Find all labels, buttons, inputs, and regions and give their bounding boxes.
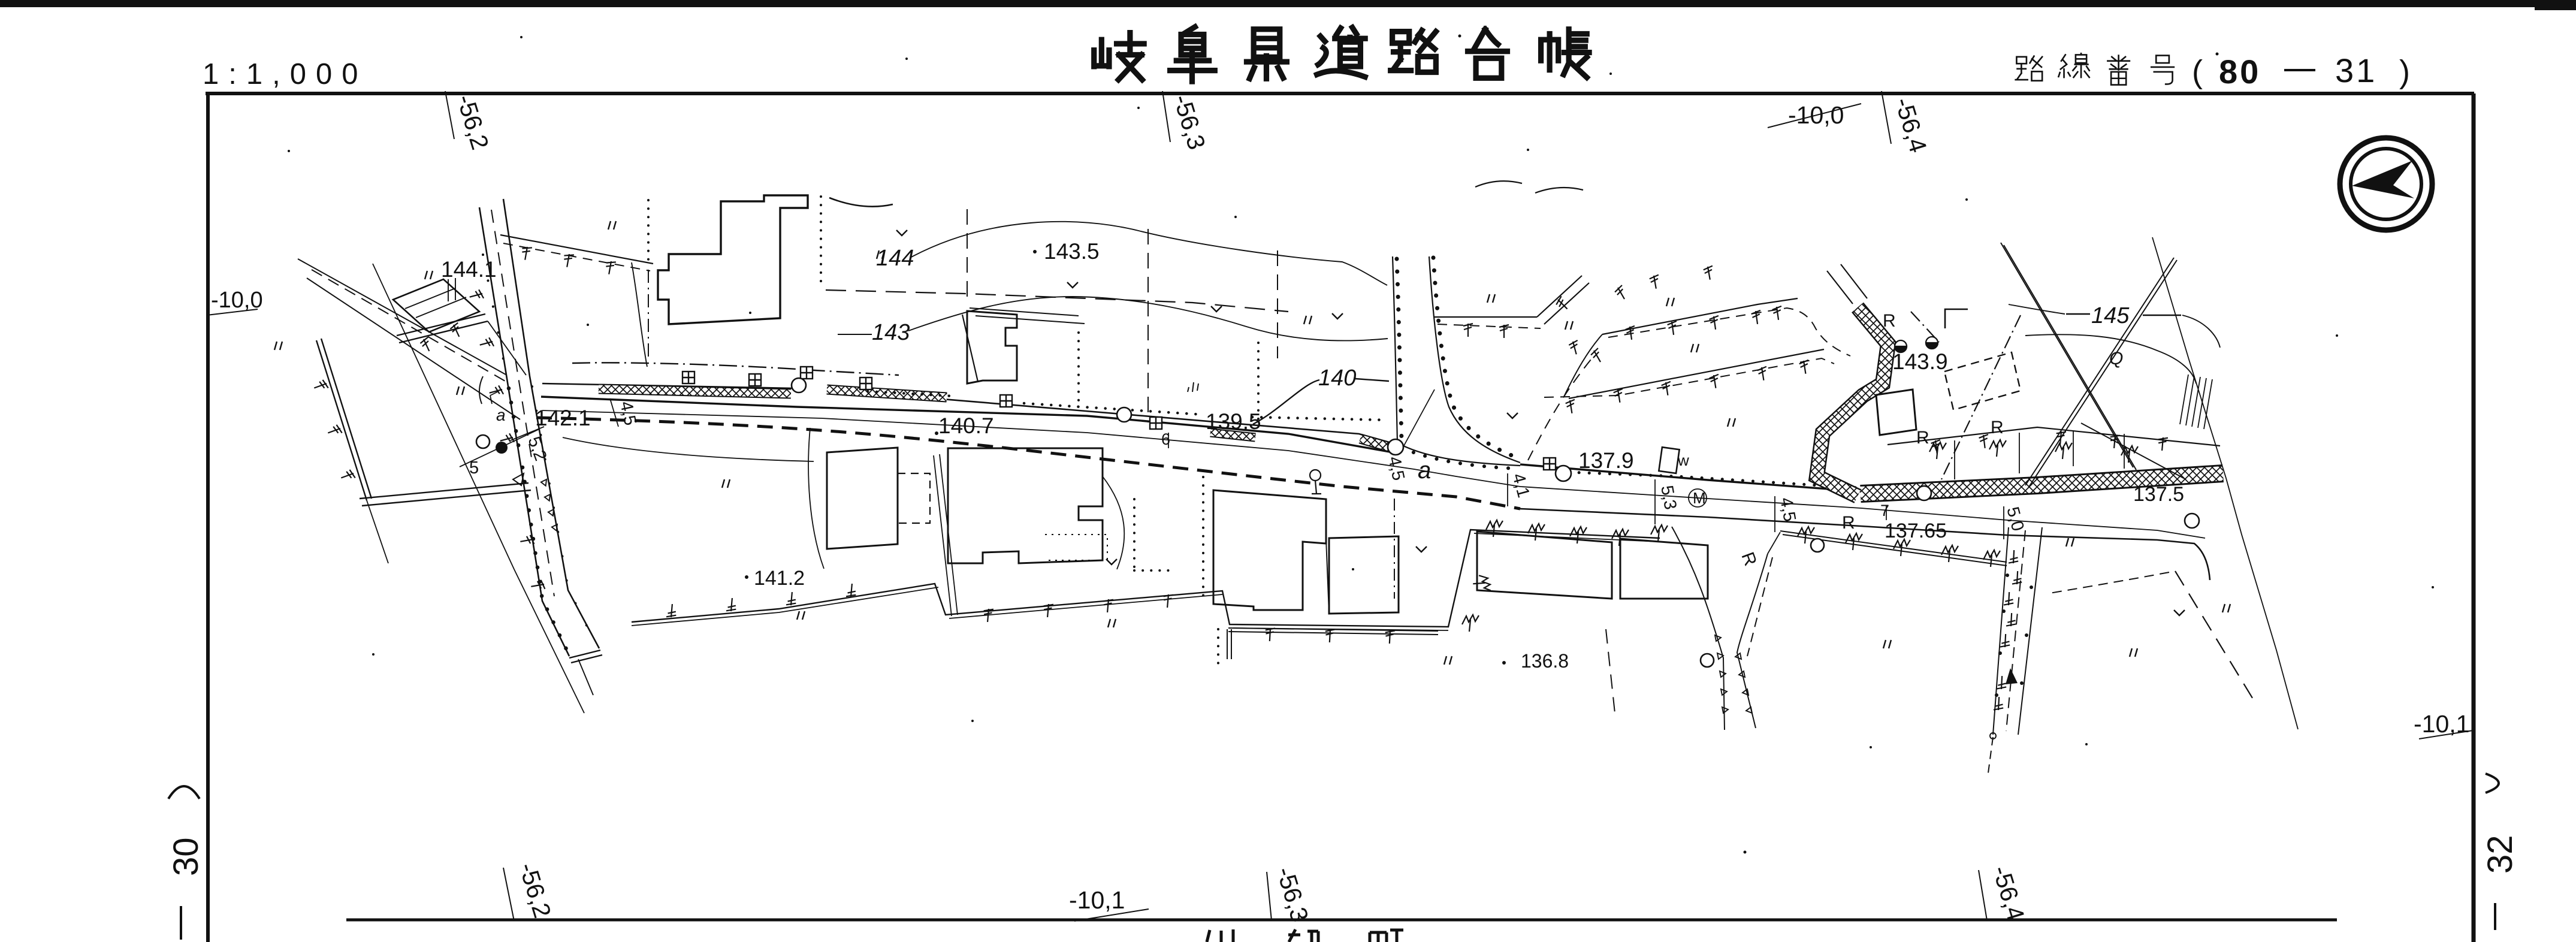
svg-text:a: a — [1418, 457, 1431, 484]
svg-text:R: R — [1916, 428, 1929, 448]
svg-text:143.9: 143.9 — [1892, 349, 1948, 374]
svg-text:): ) — [2399, 54, 2410, 90]
svg-text:R: R — [1883, 311, 1896, 331]
svg-text:7: 7 — [1880, 502, 1889, 520]
svg-text:a: a — [496, 406, 506, 424]
svg-text:136.8: 136.8 — [1521, 650, 1569, 672]
svg-text:139.5: 139.5 — [1206, 409, 1261, 434]
svg-text:137.9: 137.9 — [1578, 448, 1634, 473]
svg-text:Q: Q — [2109, 349, 2123, 369]
svg-text:137.65: 137.65 — [1885, 520, 1947, 542]
svg-text:140: 140 — [1318, 366, 1356, 391]
svg-text:1:1,000: 1:1,000 — [203, 58, 368, 90]
svg-text:137.5: 137.5 — [2133, 483, 2184, 506]
svg-text:143: 143 — [872, 320, 910, 345]
svg-text:30: 30 — [167, 837, 206, 876]
svg-text:145: 145 — [2091, 303, 2130, 328]
svg-text:R: R — [1842, 513, 1855, 533]
svg-text:80: 80 — [2219, 53, 2261, 90]
svg-text:32: 32 — [2481, 835, 2520, 874]
svg-text:144.1: 144.1 — [441, 257, 497, 282]
svg-text:(: ( — [2192, 54, 2203, 90]
svg-text:-10,0: -10,0 — [1788, 101, 1844, 129]
svg-text:141.2: 141.2 — [754, 567, 805, 590]
svg-text:-10,1: -10,1 — [1069, 886, 1125, 914]
svg-text:142.1: 142.1 — [535, 406, 591, 430]
svg-text:5: 5 — [469, 458, 479, 478]
svg-text:R: R — [1991, 418, 2004, 437]
svg-text:140.7: 140.7 — [938, 413, 994, 438]
svg-text:-10,0: -10,0 — [211, 288, 263, 313]
svg-text:143.5: 143.5 — [1044, 239, 1100, 264]
svg-text:-10,1: -10,1 — [2414, 710, 2469, 738]
svg-text:31: 31 — [2335, 52, 2377, 89]
